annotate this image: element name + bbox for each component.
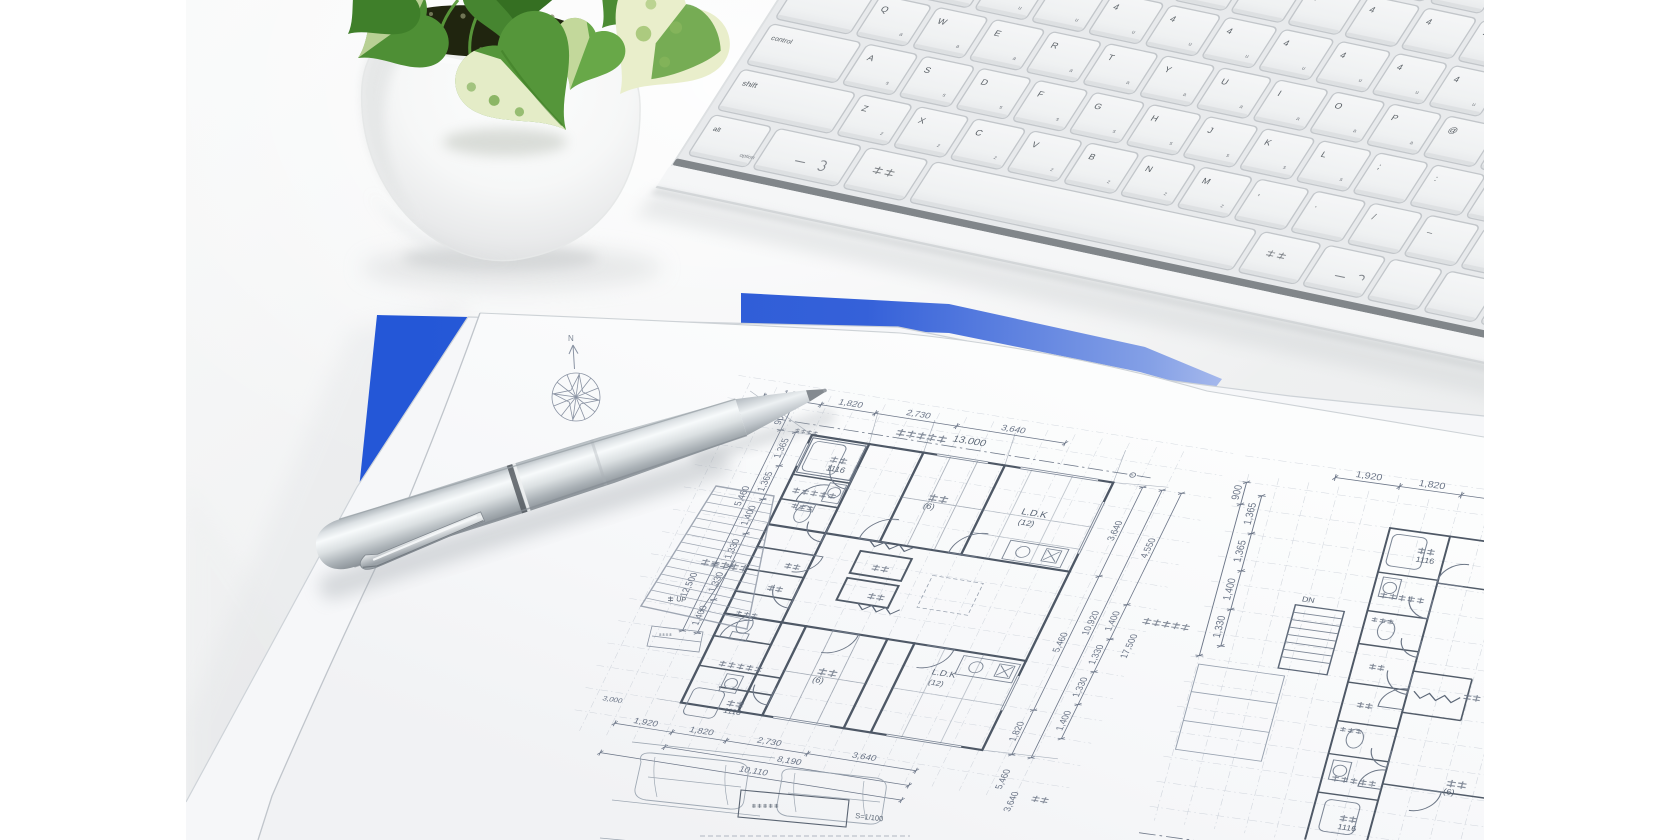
svg-text:(12): (12) bbox=[1016, 517, 1036, 528]
svg-text:DN: DN bbox=[1301, 595, 1316, 605]
svg-text:N: N bbox=[568, 334, 574, 343]
svg-text:UP: UP bbox=[676, 596, 687, 604]
svg-text:(6): (6) bbox=[1442, 787, 1456, 797]
